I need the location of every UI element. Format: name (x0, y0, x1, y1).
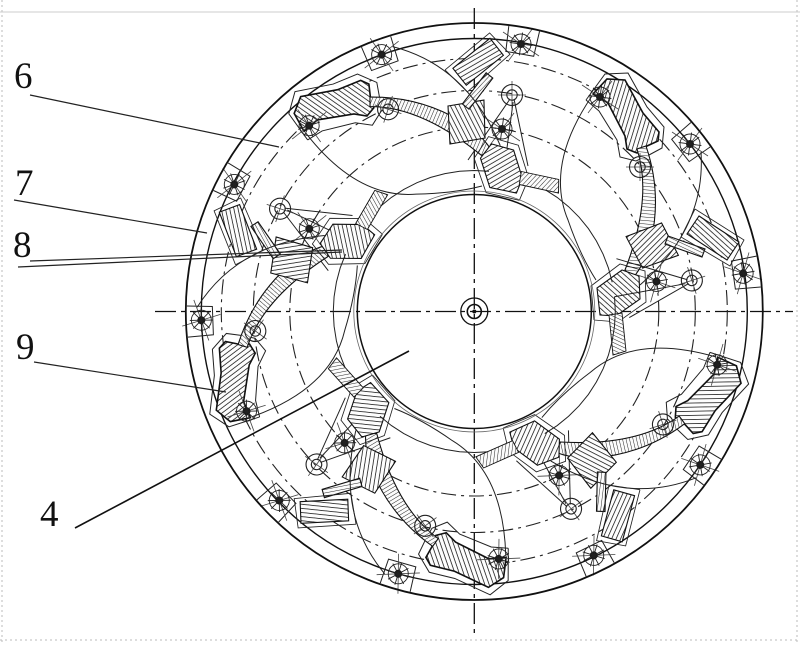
svg-text:9: 9 (16, 327, 35, 368)
svg-text:4: 4 (40, 494, 59, 535)
svg-text:7: 7 (15, 163, 34, 204)
svg-text:6: 6 (14, 56, 33, 97)
svg-text:8: 8 (13, 225, 32, 266)
